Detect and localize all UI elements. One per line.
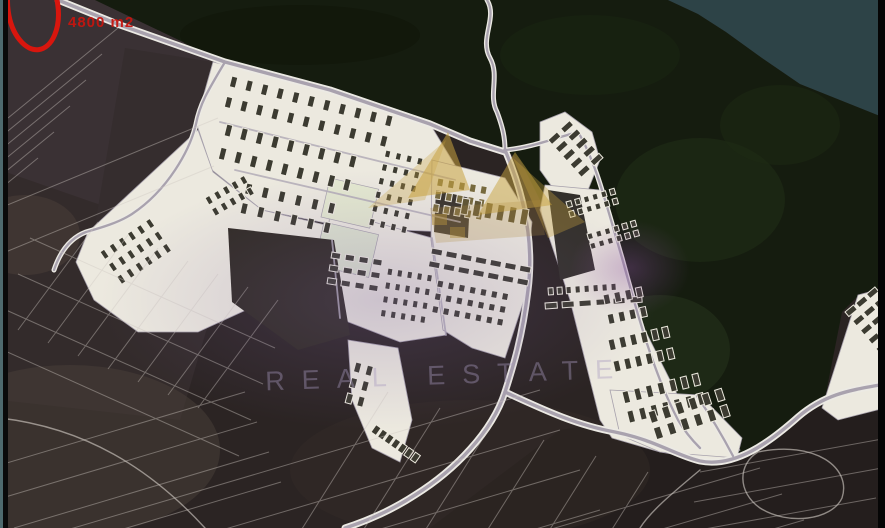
satellite-map-viewport[interactable]: REAL ESTATE 4800 m2: [0, 0, 885, 528]
annotation-area-label: 4800 m2: [68, 14, 134, 31]
satellite-map[interactable]: REAL ESTATE 4800 m2: [0, 0, 885, 528]
